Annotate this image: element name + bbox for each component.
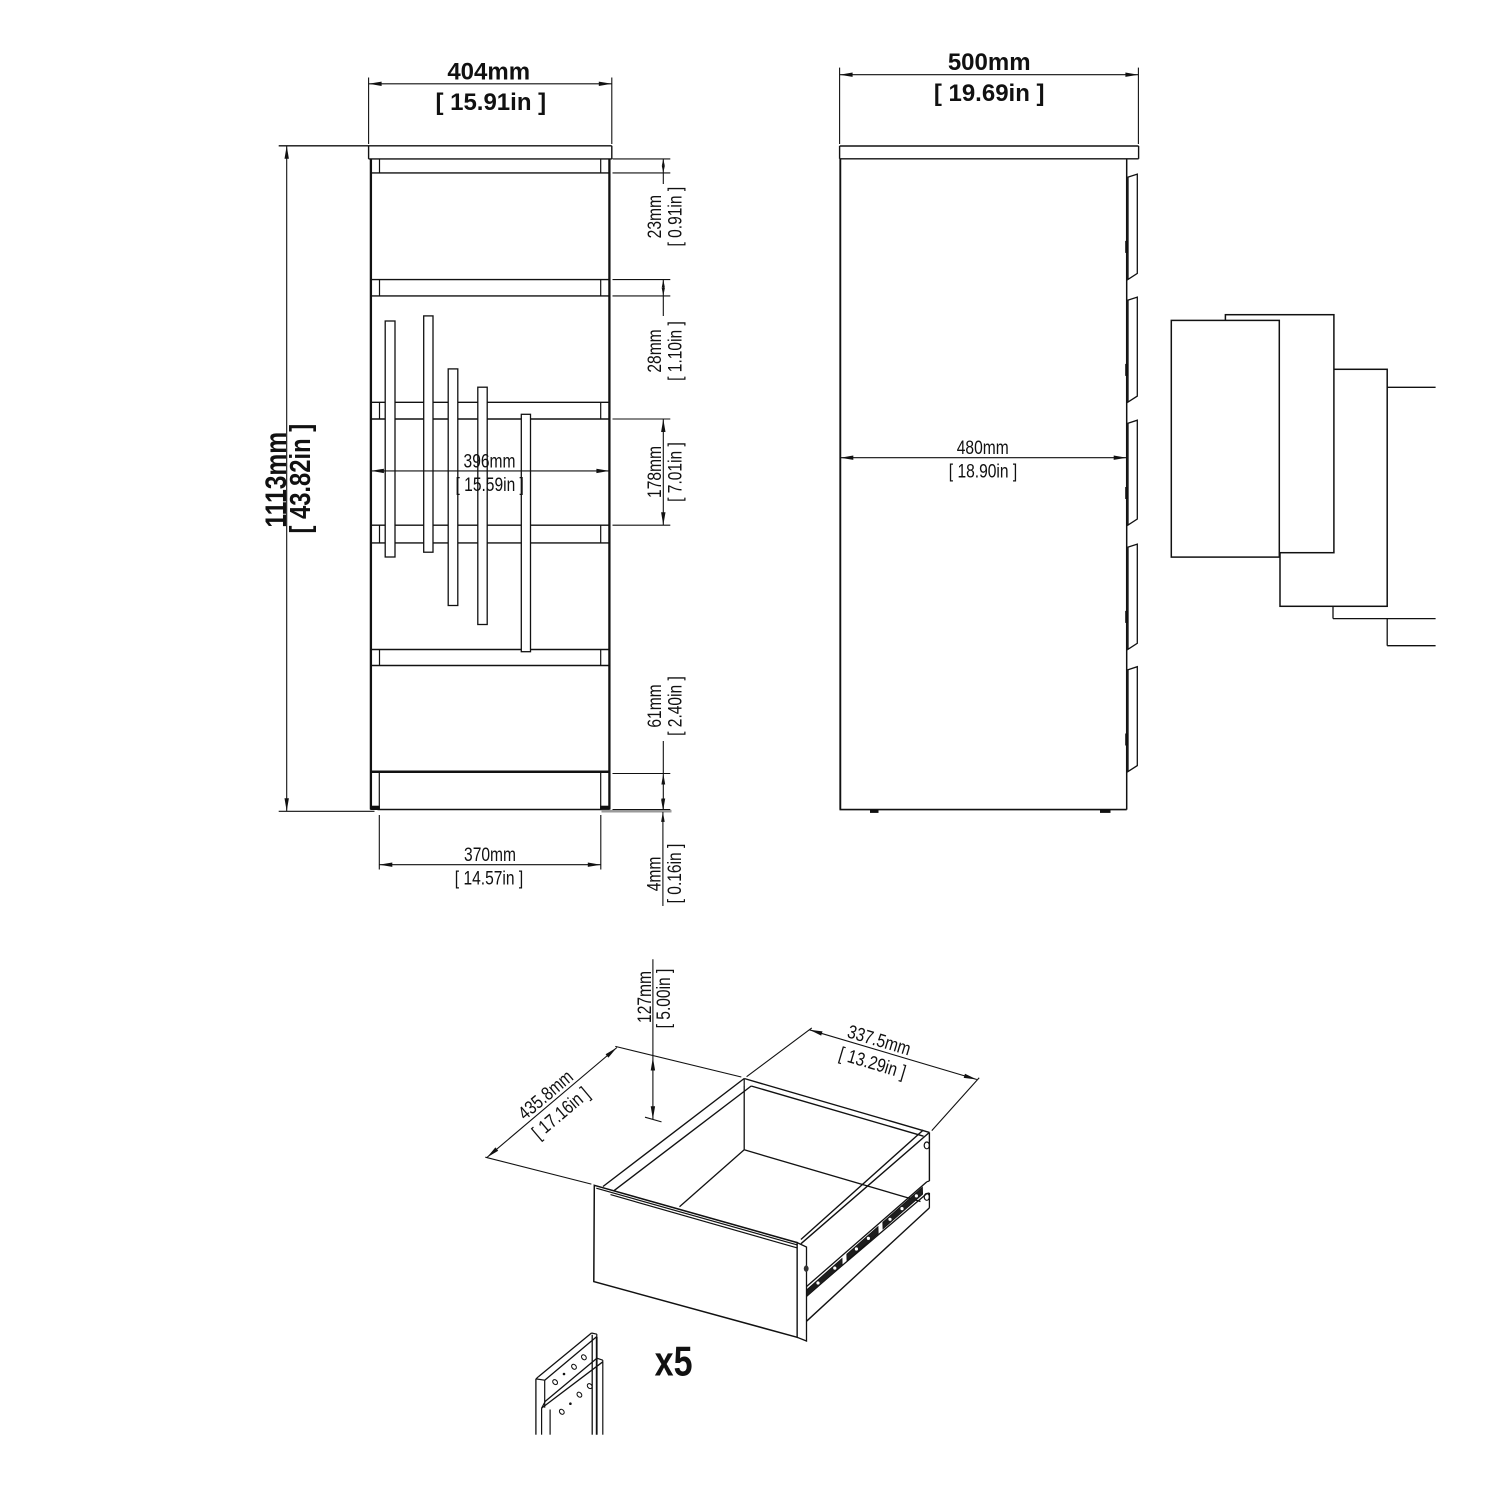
- svg-text:178mm: 178mm: [644, 446, 666, 498]
- svg-text:[ 0.91in ]: [ 0.91in ]: [664, 187, 686, 247]
- svg-text:[ 14.57in ]: [ 14.57in ]: [455, 867, 523, 889]
- svg-text:[ 2.40in ]: [ 2.40in ]: [664, 676, 686, 736]
- svg-text:[ 1.10in ]: [ 1.10in ]: [664, 321, 686, 381]
- svg-text:x5: x5: [655, 1340, 693, 1386]
- svg-text:61mm: 61mm: [644, 684, 666, 727]
- svg-text:[ 15.59in ]: [ 15.59in ]: [456, 473, 524, 495]
- svg-text:[ 7.01in ]: [ 7.01in ]: [664, 442, 686, 502]
- svg-text:396mm: 396mm: [464, 450, 516, 472]
- svg-text:[ 15.91in ]: [ 15.91in ]: [435, 89, 546, 116]
- svg-text:[ 19.69in ]: [ 19.69in ]: [934, 80, 1045, 107]
- svg-text:28mm: 28mm: [644, 329, 666, 372]
- svg-text:370mm: 370mm: [464, 844, 516, 866]
- svg-text:[ 18.90in ]: [ 18.90in ]: [949, 460, 1017, 482]
- svg-text:[ 43.82in ]: [ 43.82in ]: [284, 424, 317, 534]
- svg-text:23mm: 23mm: [644, 195, 666, 238]
- svg-text:500mm: 500mm: [948, 49, 1031, 76]
- svg-text:[ 5.00in ]: [ 5.00in ]: [653, 969, 675, 1029]
- svg-text:4mm: 4mm: [643, 857, 665, 892]
- svg-text:480mm: 480mm: [957, 437, 1009, 459]
- svg-text:[ 0.16in ]: [ 0.16in ]: [664, 844, 686, 904]
- svg-text:404mm: 404mm: [447, 58, 530, 85]
